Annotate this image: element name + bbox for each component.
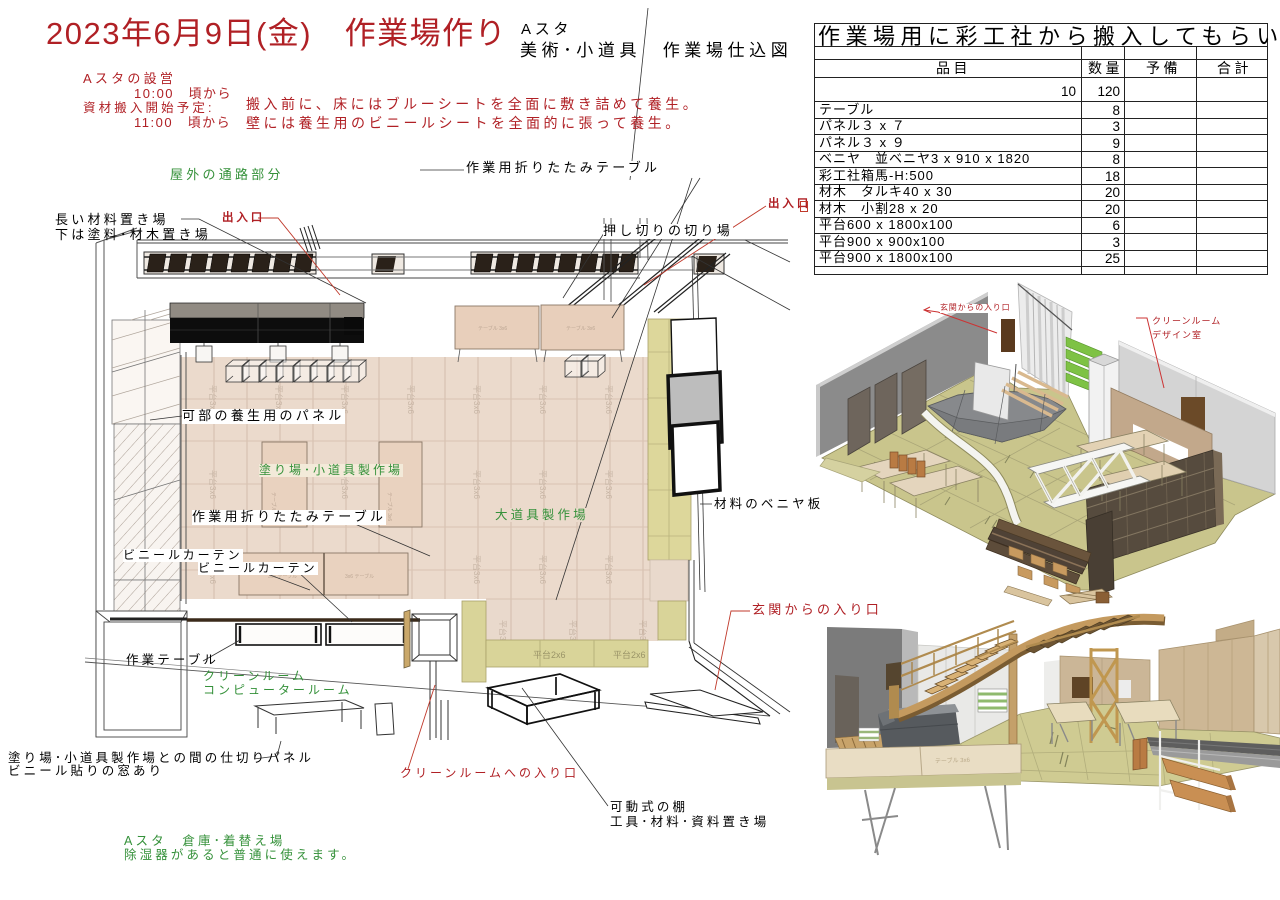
svg-text:平台3x6: 平台3x6 [538,385,548,414]
svg-text:テーブル 3x6: テーブル 3x6 [386,492,393,521]
svg-text:平台3x6: 平台3x6 [604,470,614,499]
svg-text:平台2x6: 平台2x6 [533,649,566,660]
svg-text:テーブル 3x6: テーブル 3x6 [478,325,507,332]
svg-text:平台3x6: 平台3x6 [538,470,548,499]
svg-text:テーブル 3x6: テーブル 3x6 [566,325,595,332]
svg-text:平台3x6: 平台3x6 [472,385,482,414]
svg-text:平台3x6: 平台3x6 [604,385,614,414]
svg-text:3x6 テーブル: 3x6 テーブル [345,573,374,580]
svg-text:平台3x6: 平台3x6 [472,470,482,499]
svg-text:平台3x6: 平台3x6 [604,555,614,584]
svg-text:平台3x6: 平台3x6 [538,555,548,584]
svg-text:平台3x6: 平台3x6 [406,385,416,414]
svg-text:平台3x6: 平台3x6 [208,470,218,499]
svg-text:平台2x6: 平台2x6 [613,649,646,660]
svg-text:平台3x6: 平台3x6 [472,555,482,584]
